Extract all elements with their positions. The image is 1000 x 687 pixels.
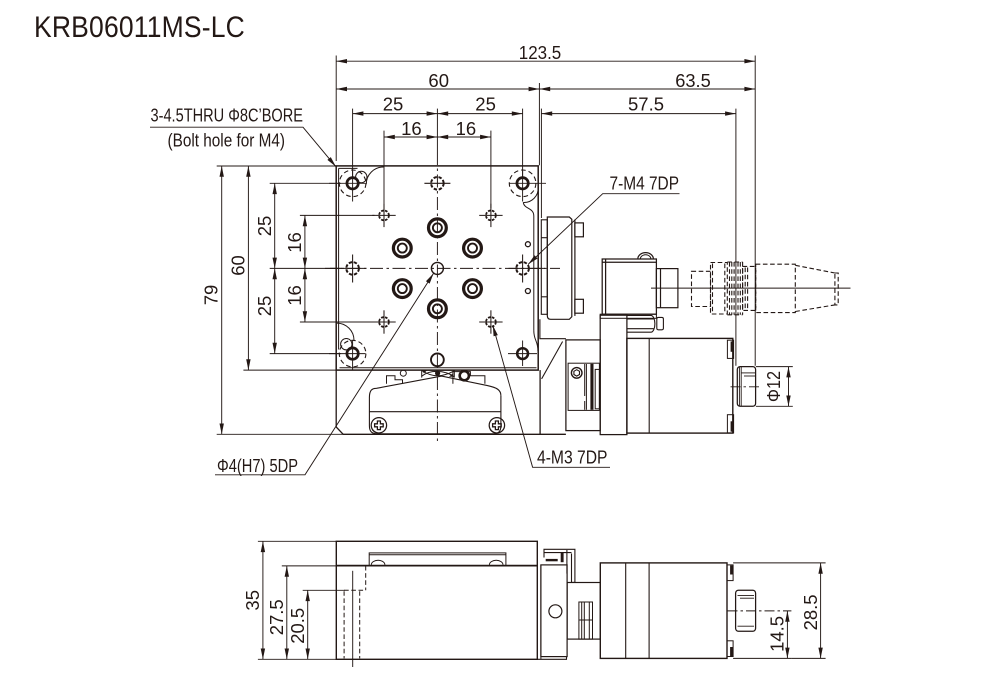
svg-text:16: 16	[401, 118, 422, 139]
svg-text:KRB06011MS-LC: KRB06011MS-LC	[34, 11, 245, 44]
svg-text:63.5: 63.5	[675, 70, 711, 91]
svg-text:Φ12: Φ12	[764, 371, 784, 402]
svg-text:60: 60	[228, 255, 249, 276]
svg-text:25: 25	[254, 296, 275, 317]
svg-text:20.5: 20.5	[287, 608, 308, 644]
svg-text:14.5: 14.5	[767, 616, 788, 652]
svg-text:25: 25	[475, 94, 496, 115]
svg-text:(Bolt hole for M4): (Bolt hole for M4)	[168, 130, 286, 151]
svg-text:4-M3 7DP: 4-M3 7DP	[537, 446, 608, 467]
svg-text:28.5: 28.5	[800, 594, 821, 630]
svg-text:25: 25	[383, 94, 404, 115]
svg-text:16: 16	[456, 118, 477, 139]
svg-text:35: 35	[242, 590, 263, 611]
svg-text:79: 79	[201, 285, 222, 306]
svg-text:123.5: 123.5	[519, 42, 562, 63]
svg-text:16: 16	[284, 232, 305, 253]
svg-text:Φ4(H7) 5DP: Φ4(H7) 5DP	[217, 455, 298, 476]
svg-text:3-4.5THRU Φ8C’BORE: 3-4.5THRU Φ8C’BORE	[151, 105, 304, 126]
svg-text:7-M4 7DP: 7-M4 7DP	[610, 173, 680, 194]
svg-text:60: 60	[428, 70, 449, 91]
svg-text:25: 25	[254, 216, 275, 237]
svg-text:57.5: 57.5	[628, 94, 664, 115]
svg-text:27.5: 27.5	[266, 599, 287, 635]
svg-text:16: 16	[284, 285, 305, 306]
